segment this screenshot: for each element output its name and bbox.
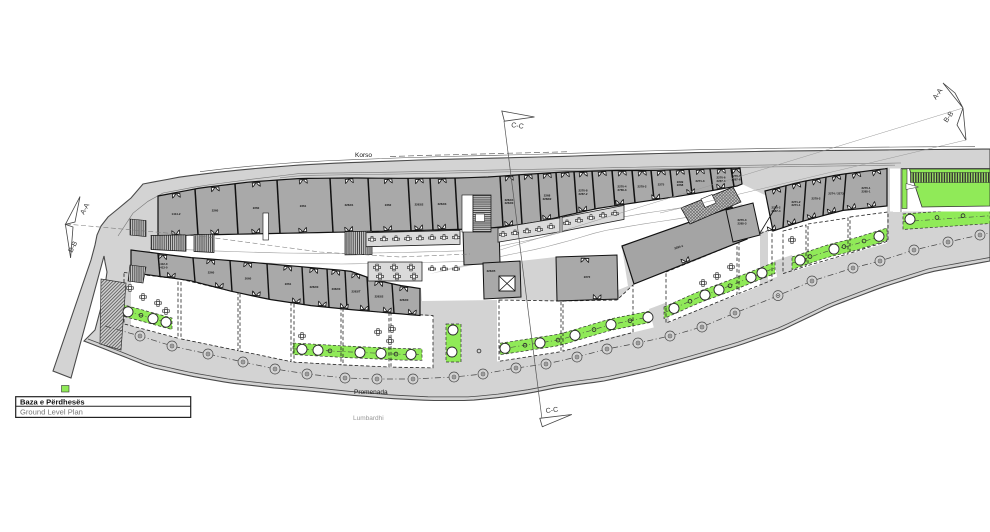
svg-text:A-A: A-A (80, 202, 92, 216)
svg-text:2262/0: 2262/0 (310, 285, 319, 289)
svg-text:2263/3: 2263/3 (438, 202, 447, 206)
svg-text:2279-2: 2279-2 (811, 196, 820, 200)
svg-text:2362/0: 2362/0 (332, 287, 341, 291)
svg-text:Ground Level Plan: Ground Level Plan (20, 408, 83, 417)
svg-text:A-A: A-A (932, 87, 945, 101)
svg-text:Baza e Përdhesës: Baza e Përdhesës (20, 397, 85, 406)
svg-text:2362: 2362 (385, 203, 392, 207)
svg-text:2265-1: 2265-1 (861, 190, 870, 194)
svg-text:2260: 2260 (212, 209, 219, 213)
svg-text:2268/2: 2268/2 (543, 197, 552, 201)
svg-text:2271-3: 2271-3 (695, 179, 704, 183)
svg-text:1413-0: 1413-0 (158, 266, 167, 270)
svg-text:C-C: C-C (545, 407, 558, 415)
svg-text:C-C: C-C (511, 122, 524, 131)
svg-text:2263/5: 2263/5 (487, 269, 496, 273)
svg-text:2265-3: 2265-3 (737, 221, 746, 225)
svg-text:1414-2: 1414-2 (171, 212, 180, 216)
svg-text:2263/0: 2263/0 (400, 298, 409, 302)
svg-text:2267-2: 2267-2 (578, 192, 587, 196)
svg-text:2260: 2260 (253, 206, 260, 210)
svg-text:Korso: Korso (355, 152, 372, 159)
svg-text:2261: 2261 (285, 282, 292, 286)
svg-text:2766-3: 2766-3 (617, 188, 626, 192)
svg-text:2272: 2272 (584, 275, 591, 279)
svg-text:2260: 2260 (208, 271, 215, 275)
svg-text:2361: 2361 (300, 204, 307, 208)
svg-text:2271-1: 2271-1 (791, 203, 800, 207)
svg-text:2060: 2060 (245, 276, 252, 280)
svg-text:B-B: B-B (943, 110, 956, 124)
svg-text:2275: 2275 (658, 183, 665, 187)
svg-text:2263/T: 2263/T (352, 290, 361, 294)
svg-text:2263/1: 2263/1 (345, 203, 354, 207)
svg-text:2274 / 2273: 2274 / 2273 (828, 192, 844, 196)
svg-text:Promenada: Promenada (354, 389, 388, 396)
svg-text:2267-6: 2267-6 (731, 178, 740, 182)
svg-text:2279-2: 2279-2 (637, 184, 646, 188)
svg-text:2263/0: 2263/0 (505, 201, 514, 205)
svg-text:Lumbardhi: Lumbardhi (353, 415, 384, 422)
svg-text:2263/2: 2263/2 (415, 203, 424, 207)
svg-text:2268: 2268 (677, 183, 684, 187)
svg-text:2263/2: 2263/2 (375, 295, 384, 299)
